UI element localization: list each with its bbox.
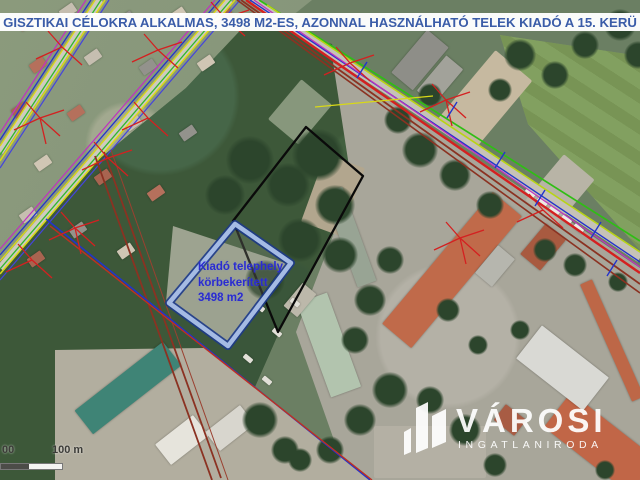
buildings-icon — [398, 396, 454, 462]
scale-bar-graphic — [0, 463, 63, 470]
utility-corridor-b — [0, 0, 240, 280]
utility-line — [148, 118, 168, 136]
scale-right-label: 100 m — [52, 444, 83, 456]
utility-line — [434, 238, 460, 250]
utility-line — [446, 92, 470, 100]
street — [0, 0, 230, 268]
logo-subtitle: INGATLANIRODA — [458, 439, 603, 451]
utility-line — [132, 50, 158, 62]
utility-line — [432, 84, 446, 100]
title-banner: GISZTIKAI CÉLOKRA ALKALMAS, 3498 M2-ES, … — [0, 13, 640, 31]
scale-bar-light-segment — [29, 464, 62, 469]
utility-line — [75, 220, 99, 228]
utility-line — [49, 228, 75, 240]
utility-line — [144, 34, 158, 50]
utility-line — [61, 212, 75, 228]
logo-name: VÁROSI — [456, 402, 607, 440]
parcel-label-line2: körbekerített — [198, 276, 283, 292]
utility-line — [446, 222, 460, 238]
utility-line — [18, 244, 32, 260]
utility-line — [460, 230, 484, 238]
utility-line — [32, 260, 52, 278]
parcel-label: Kiadó telephely körbekerített 3498 m2 — [198, 260, 283, 307]
agency-watermark: VÁROSI INGATLANIRODA — [398, 396, 638, 466]
scale-left-label: 00 — [2, 444, 14, 456]
parcel-label-line3: 3498 m2 — [198, 291, 283, 307]
listing-map-image: Kiadó telephely körbekerített 3498 m2 GI… — [0, 0, 640, 480]
utility-line — [40, 110, 64, 118]
utility-main-road — [237, 0, 640, 293]
scale-bar-dark-segment — [1, 464, 29, 469]
utility-line — [48, 31, 62, 47]
parcel-label-line1: Kiadó telephely — [198, 260, 283, 276]
title-banner-text: GISZTIKAI CÉLOKRA ALKALMAS, 3498 M2-ES, … — [3, 15, 637, 30]
